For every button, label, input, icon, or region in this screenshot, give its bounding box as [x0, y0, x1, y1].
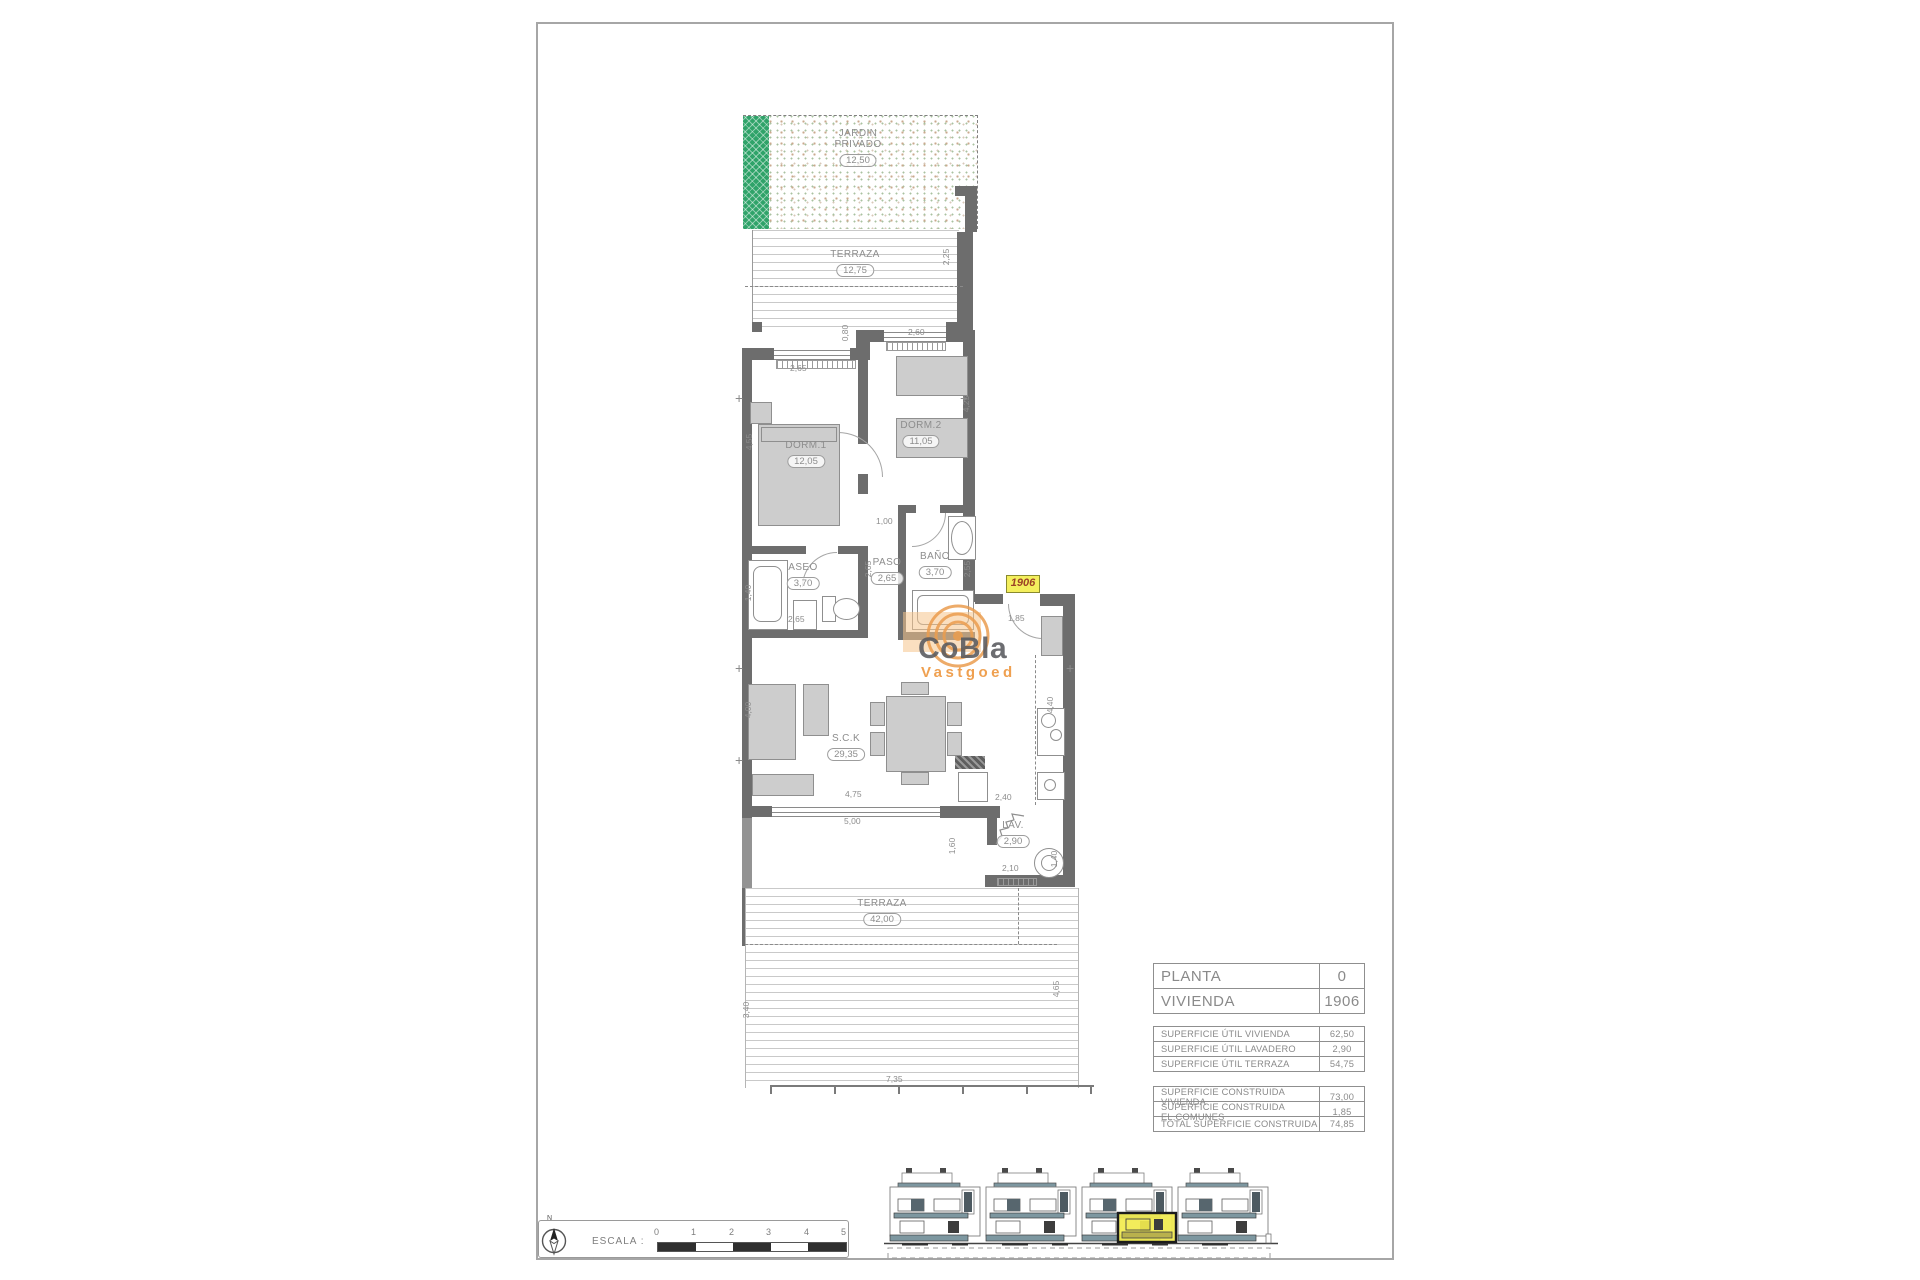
scale-tick: 1	[691, 1227, 696, 1237]
dimension-label: 4,25	[961, 392, 971, 416]
dimension-label: 3,40	[741, 998, 751, 1022]
kitchen-counter-edge	[1035, 655, 1036, 805]
room-area: 2,65	[871, 572, 904, 585]
table-row: VIVIENDA 1906	[1154, 988, 1364, 1013]
wall	[752, 322, 762, 332]
dimension-label: 2,10	[1002, 863, 1019, 873]
room-area: 2,90	[997, 835, 1030, 848]
chair	[901, 772, 929, 785]
dimension-label: 1,85	[1008, 613, 1025, 623]
chair	[947, 702, 962, 726]
north-arrow-icon	[538, 1220, 572, 1256]
dimension-label: 2,65	[790, 363, 807, 373]
dimension-label: 4,40	[1045, 693, 1055, 717]
wall	[858, 474, 868, 494]
wall	[965, 186, 977, 232]
table-row: SUPERFICIE ÚTIL VIVIENDA 62,50	[1154, 1027, 1364, 1041]
window-lav	[997, 878, 1037, 886]
terrace-dashed-line	[745, 286, 963, 287]
sofa	[748, 684, 796, 760]
terrace-dashed-line	[745, 944, 1057, 945]
room-name: BAÑO	[919, 551, 952, 562]
table-row: TOTAL SUPERFICIE CONSTRUIDA 74,85	[1154, 1116, 1364, 1131]
dimension-label: 4,65	[1051, 977, 1061, 1001]
dim-tick: +	[735, 390, 743, 406]
wall	[940, 806, 1000, 818]
room-label-bano: BAÑO 3,70	[919, 551, 952, 580]
scale-tick: 4	[804, 1227, 809, 1237]
table-value: 0	[1319, 964, 1364, 988]
wall	[940, 505, 975, 513]
table-row: SUPERFICIE ÚTIL LAVADERO 2,90	[1154, 1041, 1364, 1056]
table-value: 2,90	[1319, 1042, 1364, 1056]
room-area: 29,35	[827, 748, 865, 761]
building-elevation	[882, 1168, 1282, 1268]
room-label-sck: S.C.K 29,35	[827, 733, 865, 762]
sideboard	[752, 774, 814, 796]
dimension-label: 2,40	[995, 792, 1012, 802]
sink-drain	[1044, 779, 1056, 791]
bed-dorm2-a	[896, 356, 968, 396]
dimension-label: 4,00	[743, 698, 753, 722]
room-label-dorm2: DORM.2 11,05	[900, 420, 941, 449]
room-label-paso: PASO 2,65	[871, 557, 904, 586]
table-row: SUPERFICIE ÚTIL TERRAZA 54,75	[1154, 1056, 1364, 1071]
room-area: 3,70	[787, 577, 820, 590]
room-label-jardin: JARDIN PRIVADO 12,50	[834, 128, 881, 168]
floorplan-sheet-page: { "document": {"type_label": "floor plan…	[0, 0, 1920, 1280]
scale-tick: 3	[766, 1227, 771, 1237]
table-row: SUPERFICIE CONSTRUIDA VIVIENDA 73,00	[1154, 1087, 1364, 1101]
scale-title-block	[538, 1220, 849, 1258]
table-label: VIVIENDA	[1154, 989, 1319, 1013]
dining-table	[886, 696, 946, 772]
room-name: LAV.	[997, 820, 1030, 831]
table-row: PLANTA 0	[1154, 964, 1364, 988]
dimension-label: 1,60	[947, 834, 957, 858]
dimension-label: 1,40	[743, 581, 753, 605]
built-surface-table: SUPERFICIE CONSTRUIDA VIVIENDA 73,00 SUP…	[1153, 1086, 1365, 1132]
chair	[870, 732, 885, 756]
room-label-terraza-top: TERRAZA 12,75	[830, 249, 879, 278]
room-area: 42,00	[863, 913, 901, 926]
dimension-label: 2,60	[908, 327, 925, 337]
room-label-aseo: ASEO 3,70	[787, 562, 820, 591]
room-name: DORM.2	[900, 420, 941, 431]
table-row: SUPERFICIE CONSTRUIDA EL.COMUNES 1,85	[1154, 1101, 1364, 1116]
logo-text-cobla: CoBla	[918, 632, 1007, 666]
scale-bar	[657, 1242, 847, 1252]
chair	[947, 732, 962, 756]
dimension-label: 2,65	[788, 614, 805, 624]
terrace-dashed-line-v	[1018, 888, 1019, 944]
room-area: 11,05	[902, 435, 939, 448]
scale-segment	[658, 1243, 696, 1251]
nightstand	[750, 402, 772, 424]
window-sill	[886, 342, 946, 351]
fridge	[1041, 616, 1063, 656]
dim-tick: +	[1066, 660, 1074, 676]
room-name: TERRAZA	[857, 898, 906, 909]
table-value: 1906	[1319, 989, 1364, 1013]
toilet-bowl	[833, 598, 860, 620]
stair-hatch	[955, 756, 985, 769]
room-label-lav: LAV. 2,90	[997, 820, 1030, 849]
room-name: TERRAZA	[830, 249, 879, 260]
table-label: TOTAL SUPERFICIE CONSTRUIDA	[1154, 1117, 1319, 1131]
upper-terrace-decking	[752, 230, 959, 330]
wall	[870, 330, 884, 342]
room-area: 3,70	[919, 566, 952, 579]
room-area: 12,50	[839, 154, 877, 167]
wall-dorm-divider	[858, 358, 868, 444]
window-dorm1	[774, 350, 854, 360]
highlighted-unit-1906	[1118, 1213, 1176, 1242]
dimension-label: 0,80	[840, 321, 850, 345]
dim-tick: +	[735, 752, 743, 768]
window-sill	[776, 360, 856, 369]
scale-label: ESCALA :	[592, 1236, 644, 1247]
unit-number-tag: 1906	[1006, 575, 1040, 593]
table-value: 62,50	[1319, 1027, 1364, 1041]
room-name: JARDIN PRIVADO	[834, 128, 881, 150]
dimension-label: 1,00	[876, 516, 893, 526]
room-name: S.C.K	[827, 733, 865, 744]
wall	[744, 806, 772, 817]
dimension-label: 2,55	[962, 557, 972, 581]
table-label: SUPERFICIE ÚTIL LAVADERO	[1154, 1042, 1319, 1056]
dimension-label: 4,75	[845, 789, 862, 799]
room-label-terraza-bottom: TERRAZA 42,00	[857, 898, 906, 927]
scale-tick: 5	[841, 1227, 846, 1237]
unit-info-table: PLANTA 0 VIVIENDA 1906	[1153, 963, 1365, 1014]
table-label: SUPERFICIE ÚTIL VIVIENDA	[1154, 1027, 1319, 1041]
burner	[1050, 729, 1062, 741]
chair	[901, 682, 929, 695]
table-value: 54,75	[1319, 1057, 1364, 1071]
bathtub-inner	[753, 566, 782, 622]
scale-segment	[771, 1243, 809, 1251]
scale-segment	[808, 1243, 846, 1251]
lower-terrace-decking	[745, 888, 1079, 1088]
room-name: PASO	[871, 557, 904, 568]
scale-segment	[733, 1243, 771, 1251]
dimension-label: 1,40	[1049, 847, 1059, 871]
chair	[870, 702, 885, 726]
dimension-label: 4,55	[744, 430, 754, 454]
table-value: 74,85	[1319, 1117, 1364, 1131]
room-label-dorm1: DORM.1 12,05	[785, 440, 826, 469]
coffee-table	[803, 684, 829, 736]
scale-segment	[696, 1243, 734, 1251]
logo-text-vastgoed: Vastgoed	[921, 664, 1016, 681]
dim-tick: +	[735, 660, 743, 676]
wall-aseo-bottom	[742, 630, 868, 638]
dimension-label: 2,25	[941, 245, 951, 269]
wall	[906, 505, 916, 513]
hedge-hatch-strip	[743, 116, 769, 229]
room-area: 12,75	[836, 264, 874, 277]
table-label: SUPERFICIE ÚTIL TERRAZA	[1154, 1057, 1319, 1071]
wall	[957, 232, 973, 332]
dimension-label: 5,00	[844, 816, 861, 826]
room-name: DORM.1	[785, 440, 826, 451]
water-heater	[958, 772, 988, 802]
dimension-label: 7,35	[886, 1074, 903, 1084]
useful-surface-table: SUPERFICIE ÚTIL VIVIENDA 62,50 SUPERFICI…	[1153, 1026, 1365, 1072]
room-name: ASEO	[787, 562, 820, 573]
scale-tick: 2	[729, 1227, 734, 1237]
bath-sink	[951, 521, 973, 555]
table-label: PLANTA	[1154, 964, 1319, 988]
wall-aseo-top	[742, 546, 806, 554]
terrace-railing	[770, 1085, 1094, 1094]
scale-tick: 0	[654, 1227, 659, 1237]
room-area: 12,05	[787, 455, 825, 468]
